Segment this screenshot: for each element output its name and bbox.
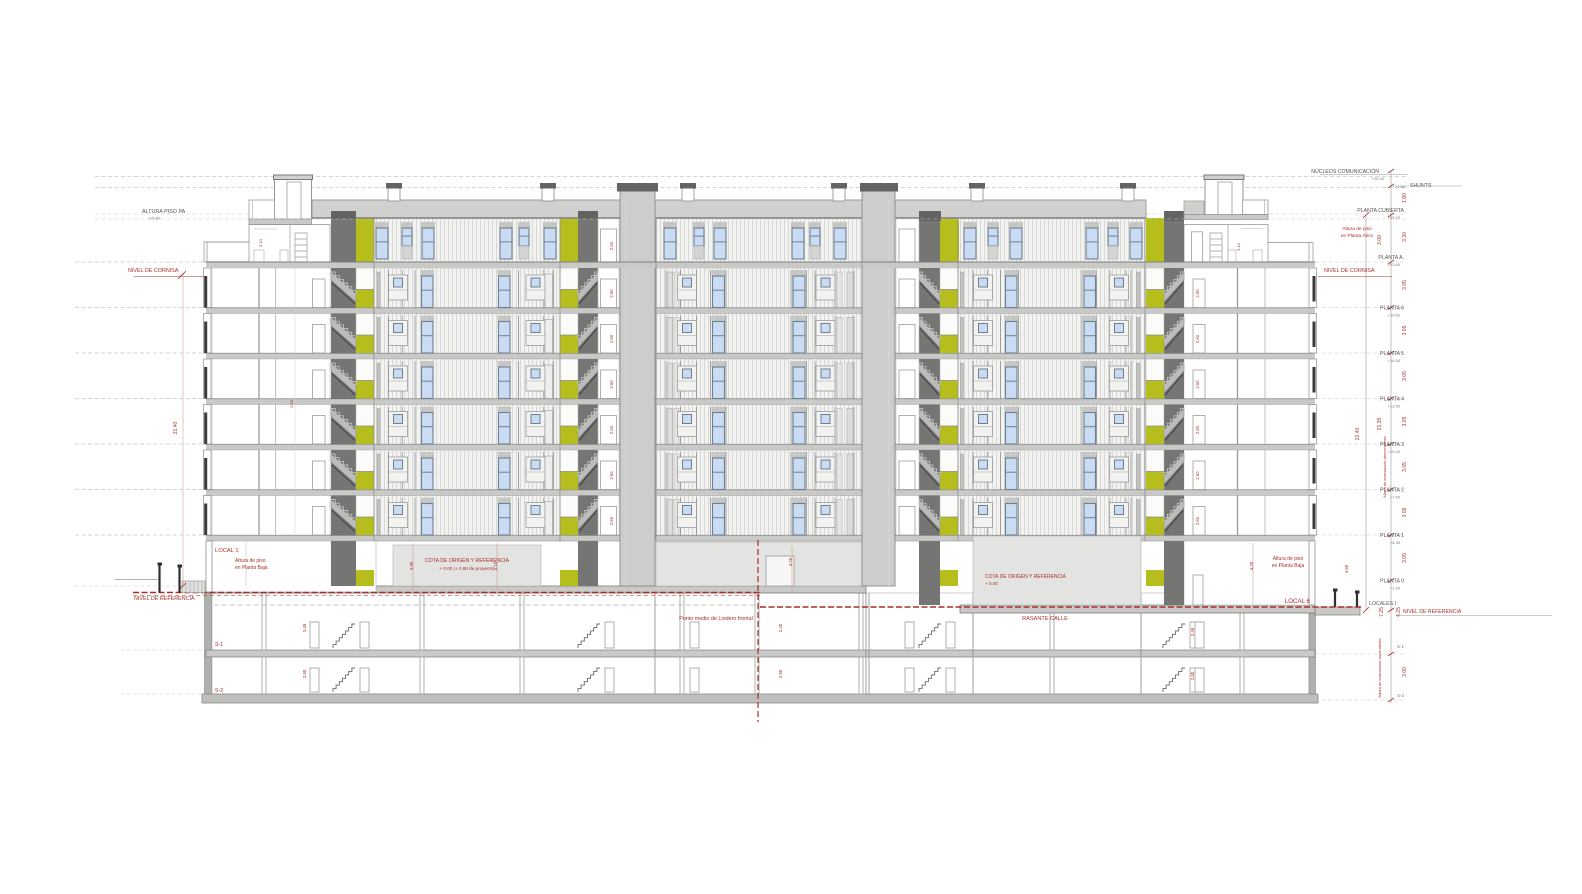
svg-text:3.05: 3.05 — [1402, 325, 1408, 335]
svg-text:+25.70: +25.70 — [1388, 215, 1401, 220]
svg-text:3.05: 3.05 — [1402, 507, 1408, 517]
svg-text:+1.30: +1.30 — [1390, 586, 1401, 591]
svg-text:2.60: 2.60 — [609, 471, 614, 480]
svg-text:S-1: S-1 — [1397, 644, 1405, 649]
svg-text:2.60: 2.60 — [609, 380, 614, 389]
svg-text:2.60: 2.60 — [609, 289, 614, 298]
svg-text:4.60: 4.60 — [1344, 564, 1349, 573]
svg-text:4.20: 4.20 — [1249, 561, 1254, 570]
svg-text:LOCAL 1: LOCAL 1 — [215, 548, 239, 554]
svg-text:4.20: 4.20 — [788, 557, 793, 566]
svg-text:3.05: 3.05 — [1402, 416, 1408, 426]
svg-text:Punto medio de Lindero frontal: Punto medio de Lindero frontal — [679, 616, 753, 622]
svg-text:+22.65: +22.65 — [1388, 262, 1401, 267]
svg-text:2.60: 2.60 — [1195, 380, 1200, 389]
svg-text:2.60: 2.60 — [289, 399, 294, 408]
svg-text:3.10: 3.10 — [258, 238, 263, 247]
svg-text:3.05: 3.05 — [1402, 280, 1408, 290]
svg-text:2.60: 2.60 — [609, 425, 614, 434]
svg-text:S-2: S-2 — [215, 688, 223, 694]
svg-text:Altura de evacuación ascendent: Altura de evacuación ascendente — [1377, 638, 1382, 698]
svg-text:RASANTE CALLE: RASANTE CALLE — [1022, 616, 1068, 622]
svg-text:2.60: 2.60 — [1195, 289, 1200, 298]
svg-text:+29.30: +29.30 — [1372, 176, 1385, 181]
svg-text:Altura de piso: Altura de piso — [1342, 226, 1372, 232]
svg-text:+16.55: +16.55 — [1388, 358, 1401, 363]
svg-text:NÚCLEOS COMUNICACIÓN: NÚCLEOS COMUNICACIÓN — [1311, 168, 1379, 175]
svg-text:+10.45: +10.45 — [1388, 449, 1401, 454]
svg-text:2.45: 2.45 — [1190, 627, 1195, 636]
svg-text:3.05: 3.05 — [1402, 462, 1408, 472]
svg-text:3.00: 3.00 — [1402, 667, 1408, 677]
svg-text:PLANTA A.: PLANTA A. — [1378, 255, 1404, 261]
svg-text:2.80: 2.80 — [1190, 671, 1195, 680]
svg-text:PLANTA 1: PLANTA 1 — [1380, 533, 1404, 539]
svg-text:+4.35: +4.35 — [1390, 540, 1401, 545]
svg-text:NIVEL DE REFERENCIA: NIVEL DE REFERENCIA — [1403, 609, 1462, 615]
svg-text:+19.60: +19.60 — [1388, 313, 1401, 318]
svg-text:3.05: 3.05 — [1402, 371, 1408, 381]
svg-text:NIVEL DE CORNISA: NIVEL DE CORNISA — [1324, 268, 1375, 274]
svg-text:3.90: 3.90 — [409, 561, 414, 570]
svg-text:en Planta Baja: en Planta Baja — [1272, 563, 1305, 569]
svg-text:3.05: 3.05 — [1402, 553, 1408, 563]
svg-text:LOCAL 6: LOCAL 6 — [1285, 598, 1311, 605]
svg-text:PLANTA 5: PLANTA 5 — [1380, 351, 1404, 357]
svg-text:1.80: 1.80 — [1402, 193, 1408, 203]
svg-text:COTA DE ORIGEN Y REFERENCIA: COTA DE ORIGEN Y REFERENCIA — [985, 574, 1067, 580]
svg-text:2.60: 2.60 — [1195, 516, 1200, 525]
svg-text:COTA DE ORIGEN Y REFERENCIA: COTA DE ORIGEN Y REFERENCIA — [425, 558, 509, 564]
svg-text:+ 0.00: + 0.00 — [985, 581, 998, 586]
svg-text:NIVEL DE CORNISA: NIVEL DE CORNISA — [128, 268, 179, 274]
svg-text:en Planta Ático: en Planta Ático — [1341, 232, 1374, 239]
svg-text:Altura de piso: Altura de piso — [1273, 556, 1304, 562]
svg-text:2.80: 2.80 — [778, 669, 783, 678]
svg-text:7.25: 7.25 — [1379, 607, 1385, 617]
svg-text:S-1: S-1 — [215, 642, 223, 648]
svg-text:+13.50: +13.50 — [1388, 404, 1401, 409]
svg-text:2.60: 2.60 — [609, 334, 614, 343]
svg-text:+ 0.00 (+ 0.90 de proyecto): + 0.00 (+ 0.90 de proyecto) — [439, 566, 495, 571]
svg-text:2.60: 2.60 — [1195, 334, 1200, 343]
svg-text:LOCALES I: LOCALES I — [1369, 601, 1396, 607]
svg-text:22.40: 22.40 — [1355, 428, 1361, 441]
svg-text:Altura de piso: Altura de piso — [235, 558, 266, 564]
svg-text:PLANTA 6: PLANTA 6 — [1380, 306, 1404, 312]
svg-text:21.35: 21.35 — [1377, 418, 1383, 431]
svg-text:3.10: 3.10 — [1236, 242, 1241, 251]
svg-text:+7.40: +7.40 — [1390, 495, 1401, 500]
svg-text:2.40: 2.40 — [778, 623, 783, 632]
svg-text:21.40: 21.40 — [173, 422, 179, 435]
svg-text:3.00: 3.00 — [1377, 235, 1383, 245]
svg-text:PLANTA CUBIERTA: PLANTA CUBIERTA — [1357, 208, 1404, 214]
svg-text:NIVEL DE REFERENCIA: NIVEL DE REFERENCIA — [134, 596, 195, 602]
svg-text:PLANTA 0: PLANTA 0 — [1380, 579, 1404, 585]
svg-text:3.30: 3.30 — [1402, 232, 1408, 242]
svg-text:2.60: 2.60 — [609, 241, 614, 250]
svg-text:2.60: 2.60 — [609, 516, 614, 525]
svg-text:+26.80: +26.80 — [148, 216, 161, 221]
svg-text:Altura de evacuación descenden: Altura de evacuación descendente — [1382, 436, 1387, 498]
svg-text:2.60: 2.60 — [1195, 471, 1200, 480]
svg-text:2.80: 2.80 — [302, 669, 307, 678]
svg-text:en Planta Baja: en Planta Baja — [235, 565, 268, 571]
svg-text:PLANTA 4: PLANTA 4 — [1380, 397, 1404, 403]
svg-text:+27.85: +27.85 — [1393, 184, 1406, 189]
svg-text:2.60: 2.60 — [1195, 425, 1200, 434]
svg-text:4.25: 4.25 — [1396, 607, 1402, 617]
svg-text:S-2: S-2 — [1397, 693, 1405, 698]
svg-text:ALTURA PISO PA: ALTURA PISO PA — [142, 209, 186, 215]
svg-text:3.45: 3.45 — [302, 623, 307, 632]
